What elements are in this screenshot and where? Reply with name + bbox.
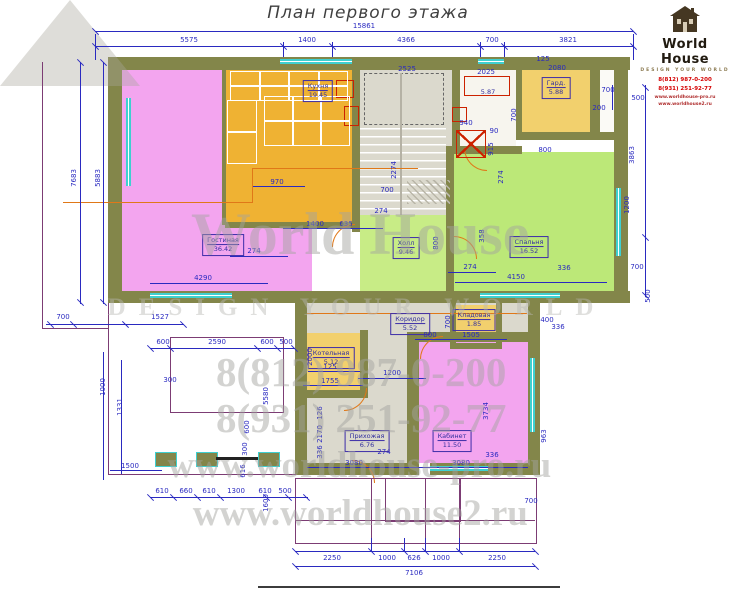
room-name: Гостиная <box>207 236 239 244</box>
room-label: Спальня16.52 <box>510 236 549 258</box>
logo-phone-2: 8(931) 251-92-77 <box>638 85 732 94</box>
logo-tagline: DESIGN YOUR WORLD <box>638 68 732 73</box>
room-label: Кухня19.45 <box>303 80 333 102</box>
room-label: Кладовая1.85 <box>453 309 496 331</box>
room-label: Кабинет11.50 <box>433 430 472 452</box>
room-label: Коридор5.52 <box>390 313 430 335</box>
room-label: Гостиная36.42 <box>202 234 244 256</box>
room-name: Прихожая <box>350 432 385 440</box>
logo-phone-1: 8(812) 987-0-200 <box>638 76 732 85</box>
room-name: Холл <box>398 239 415 247</box>
room-area: 6.76 <box>350 441 385 450</box>
room-area: 1.85 <box>458 320 491 329</box>
room-area: 5.12 <box>313 358 350 367</box>
logo-name: World House <box>638 37 732 67</box>
room-label: Гард.5.88 <box>542 77 571 99</box>
room-name: Кухня <box>308 82 328 90</box>
room-label: Прихожая6.76 <box>345 430 390 452</box>
room-label: Котельная5.12 <box>308 347 355 369</box>
room-name: Спальня <box>515 238 544 246</box>
room-area: 11.50 <box>438 441 467 450</box>
room-name: Котельная <box>313 349 350 357</box>
room-label: Холл9.46 <box>393 237 420 259</box>
room-area: 5.52 <box>395 324 425 333</box>
world-house-logo: World House DESIGN YOUR WORLD 8(812) 987… <box>638 6 732 108</box>
logo-site-1: www.worldhouse-pro.ru <box>638 94 732 101</box>
room-labels-layer: Кухня19.45Гостиная36.42Холл9.46Спальня16… <box>0 0 734 590</box>
room-name: Гард. <box>547 79 566 87</box>
logo-contacts: 8(812) 987-0-200 8(931) 251-92-77 www.wo… <box>638 76 732 108</box>
room-area: 36.42 <box>207 245 239 254</box>
room-area: 16.52 <box>515 247 544 256</box>
page-title: План первого этажа <box>267 3 469 23</box>
room-label: 5.87 <box>477 87 499 97</box>
room-name: Коридор <box>395 315 425 323</box>
room-name: Кладовая <box>458 311 491 319</box>
logo-site-2: www.worldhouse2.ru <box>638 101 732 108</box>
house-icon <box>669 6 701 32</box>
floor-plan-sheet: План первого этажа World House DESIGN YO… <box>0 0 734 590</box>
room-area: 5.88 <box>547 88 566 97</box>
room-area: 5.87 <box>481 88 495 96</box>
room-area: 19.45 <box>308 91 328 100</box>
room-area: 9.46 <box>398 248 415 257</box>
room-name: Кабинет <box>438 432 467 440</box>
